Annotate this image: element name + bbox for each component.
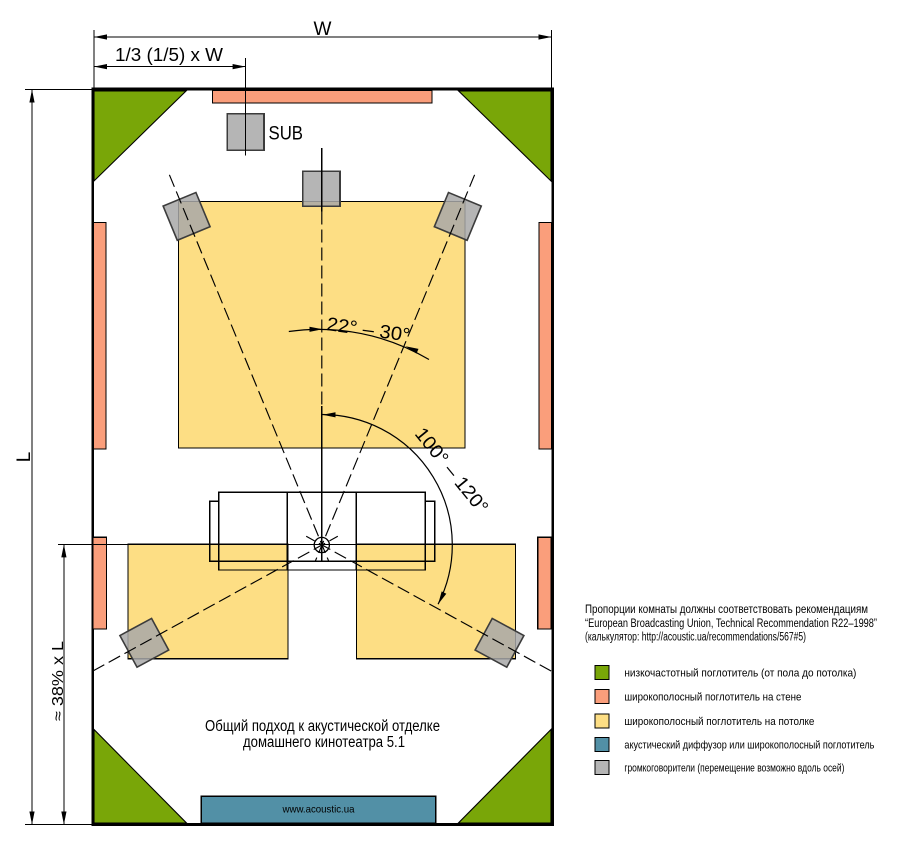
svg-text:низкочастотный поглотитель (от: низкочастотный поглотитель (от пола до п… [624,668,856,680]
svg-text:широкополосный поглотитель на: широкополосный поглотитель на потолке [624,716,814,728]
svg-text:L: L [14,452,35,463]
svg-text:Общий подход к акустической от: Общий подход к акустической отделке [205,718,440,735]
svg-text:громкоговорители (перемещение: громкоговорители (перемещение возможно в… [624,763,844,775]
svg-text:широкополосный поглотитель на: широкополосный поглотитель на стене [624,692,801,704]
svg-text:www.acoustic.ua: www.acoustic.ua [282,804,355,816]
svg-text:акустический диффузор или широ: акустический диффузор или широкополосный… [624,740,874,752]
svg-text:“European Broadcasting Union,: “European Broadcasting Union, Technical … [585,618,877,630]
svg-text:1/3 (1/5) x W: 1/3 (1/5) x W [115,45,223,65]
svg-text:SUB: SUB [269,124,304,145]
svg-text:≈ 38% x L: ≈ 38% x L [50,641,67,721]
svg-text:Пропорции комнаты должны соотв: Пропорции комнаты должны соответствовать… [585,604,868,616]
svg-text:домашнего кинотеатра 5.1: домашнего кинотеатра 5.1 [243,734,405,751]
svg-text:(калькулятор: http://acoustic.: (калькулятор: http://acoustic.ua/recomme… [585,632,806,644]
svg-text:W: W [314,19,332,40]
